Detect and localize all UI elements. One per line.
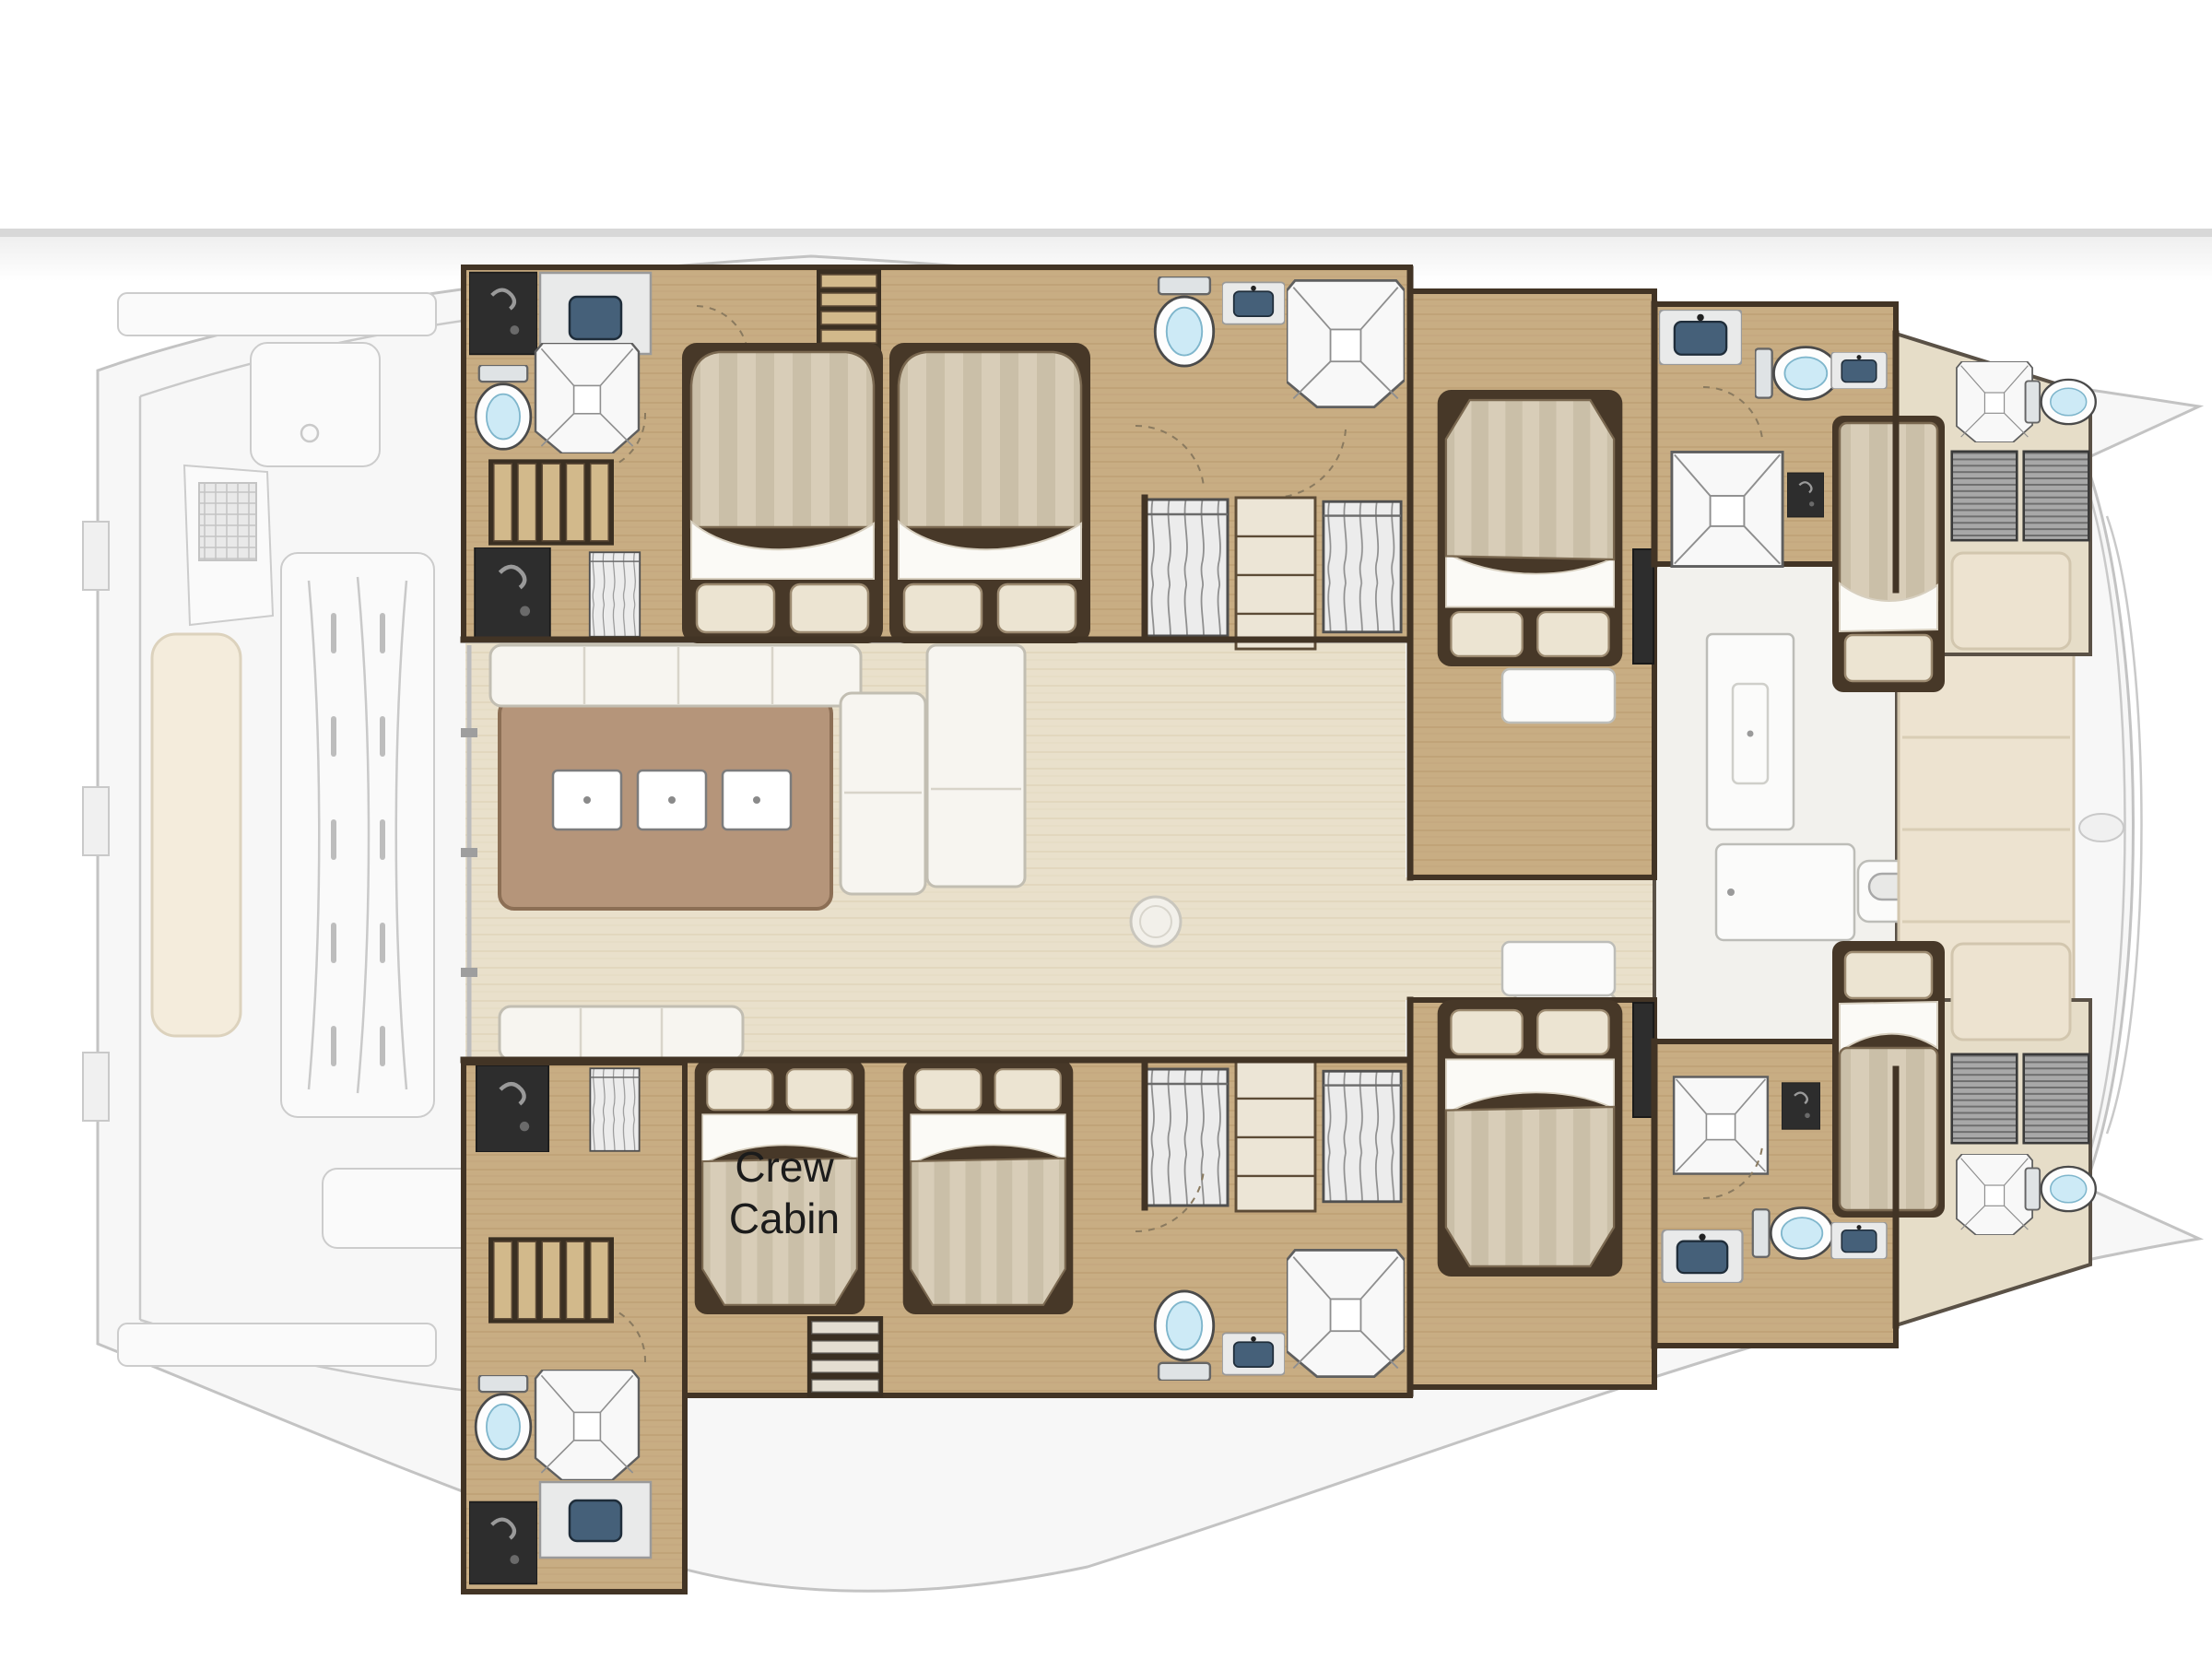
wardrobe [1147,500,1228,636]
square-shower [1672,452,1783,566]
dark-locker [475,547,550,638]
toilet [1753,1207,1833,1258]
transom-step [83,1053,109,1121]
wardrobe [1324,1071,1401,1202]
wardrobe [1147,1069,1228,1206]
toilet [476,1375,531,1459]
door-mullion [461,968,477,977]
crew-cabin-label-line1: Crew [735,1143,834,1191]
door-mullion [461,728,477,737]
sink [1663,1230,1743,1283]
toilet [2026,380,2096,424]
bow-windlass [2079,814,2124,841]
port-aft-double-bed [682,343,883,643]
dark-locker [1787,473,1824,517]
foot-bench [1502,669,1615,723]
port-forward-double-bed [1438,390,1623,666]
sink [1659,310,1742,365]
sink [1222,282,1285,324]
targa-beam [118,293,436,335]
crew-stairs [807,1316,883,1397]
deck-panel [251,343,380,466]
wardrobe [1324,501,1401,632]
dark-locker [477,1065,548,1152]
sink-basin [570,297,621,339]
nightstand [1633,1003,1653,1117]
stbd-mid-double-bed [903,1060,1074,1314]
shower [535,1370,639,1480]
door-mullion [461,848,477,857]
cockpit-sunbed [152,634,241,1036]
dark-locker [1782,1083,1820,1129]
nightstand [1633,549,1653,664]
toilet [2026,1167,2096,1211]
shelf-unit [1236,1060,1315,1211]
catamaran-floorplan: Crew Cabin [0,0,2212,1659]
shower [1957,1154,2032,1235]
crew-cabin-label-line2: Cabin [729,1194,840,1242]
toilet [1755,347,1838,400]
sink-basin [570,1500,621,1541]
bow-cushion [1952,553,2070,649]
louvered-locker [1952,1054,2018,1143]
galley-island [500,699,831,909]
louvered-locker [2024,452,2089,540]
stbd-companionway-stairs [488,1237,614,1323]
toilet [1155,1291,1213,1381]
round-side-table [1131,897,1181,947]
floorplan-page: Crew Cabin [0,0,2212,1659]
dark-locker [469,273,537,355]
cockpit-table [281,553,434,1117]
separator-band [0,229,2212,237]
port-companionway-stairs [488,459,614,545]
head-bench [1502,942,1615,995]
console-grill [199,483,256,560]
louvered-locker [2024,1054,2089,1143]
stbd-forward-double-bed [1438,1000,1623,1277]
tall-cabinet [1707,634,1794,829]
sink [1222,1333,1285,1374]
shower [1957,361,2032,442]
chaise-longue [927,645,1025,887]
aft-beam [118,1324,436,1366]
sink-small [1831,1222,1887,1259]
toilet [476,365,531,449]
port-mid-double-bed [889,343,1090,643]
stbd-forepeak-berth [1832,941,1945,1218]
toilet [1155,276,1213,366]
dark-locker [469,1502,537,1584]
shower [535,343,639,453]
port-aft-head [469,273,651,470]
shelf-unit [1236,498,1315,649]
hanging-locker [590,552,640,637]
port-forepeak-berth [1832,416,1945,692]
bow-cushion [1952,944,2070,1040]
shower [1287,1250,1405,1376]
square-shower [1674,1077,1768,1173]
sink-small [1831,352,1887,389]
transom-step [83,787,109,855]
aft-sofa [500,1006,743,1060]
transom-step [83,522,109,590]
louvered-locker [1952,452,2018,540]
hanging-locker [590,1068,639,1151]
shower [1287,280,1405,406]
